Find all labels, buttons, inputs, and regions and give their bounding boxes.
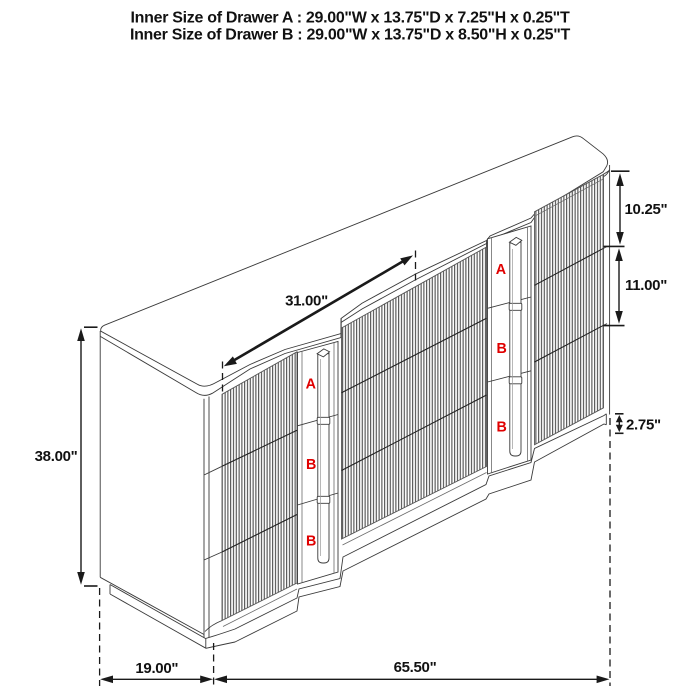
svg-text:Inner Size of Drawer A : 29.00: Inner Size of Drawer A : 29.00"W x 13.75…: [131, 10, 570, 27]
svg-text:38.00": 38.00": [35, 448, 78, 465]
svg-text:65.50": 65.50": [394, 659, 437, 676]
svg-text:Inner Size of Drawer B : 29.00: Inner Size of Drawer B : 29.00"W x 13.75…: [130, 27, 571, 44]
svg-text:31.00": 31.00": [285, 293, 328, 310]
svg-text:A: A: [306, 376, 316, 392]
svg-text:B: B: [306, 534, 316, 550]
svg-text:11.00": 11.00": [625, 277, 667, 294]
svg-text:2.75": 2.75": [626, 417, 661, 434]
svg-text:19.00": 19.00": [135, 660, 178, 677]
svg-text:B: B: [497, 420, 507, 436]
svg-text:B: B: [306, 457, 316, 473]
svg-text:A: A: [496, 262, 506, 278]
svg-text:10.25": 10.25": [625, 201, 668, 218]
svg-text:B: B: [497, 341, 507, 357]
